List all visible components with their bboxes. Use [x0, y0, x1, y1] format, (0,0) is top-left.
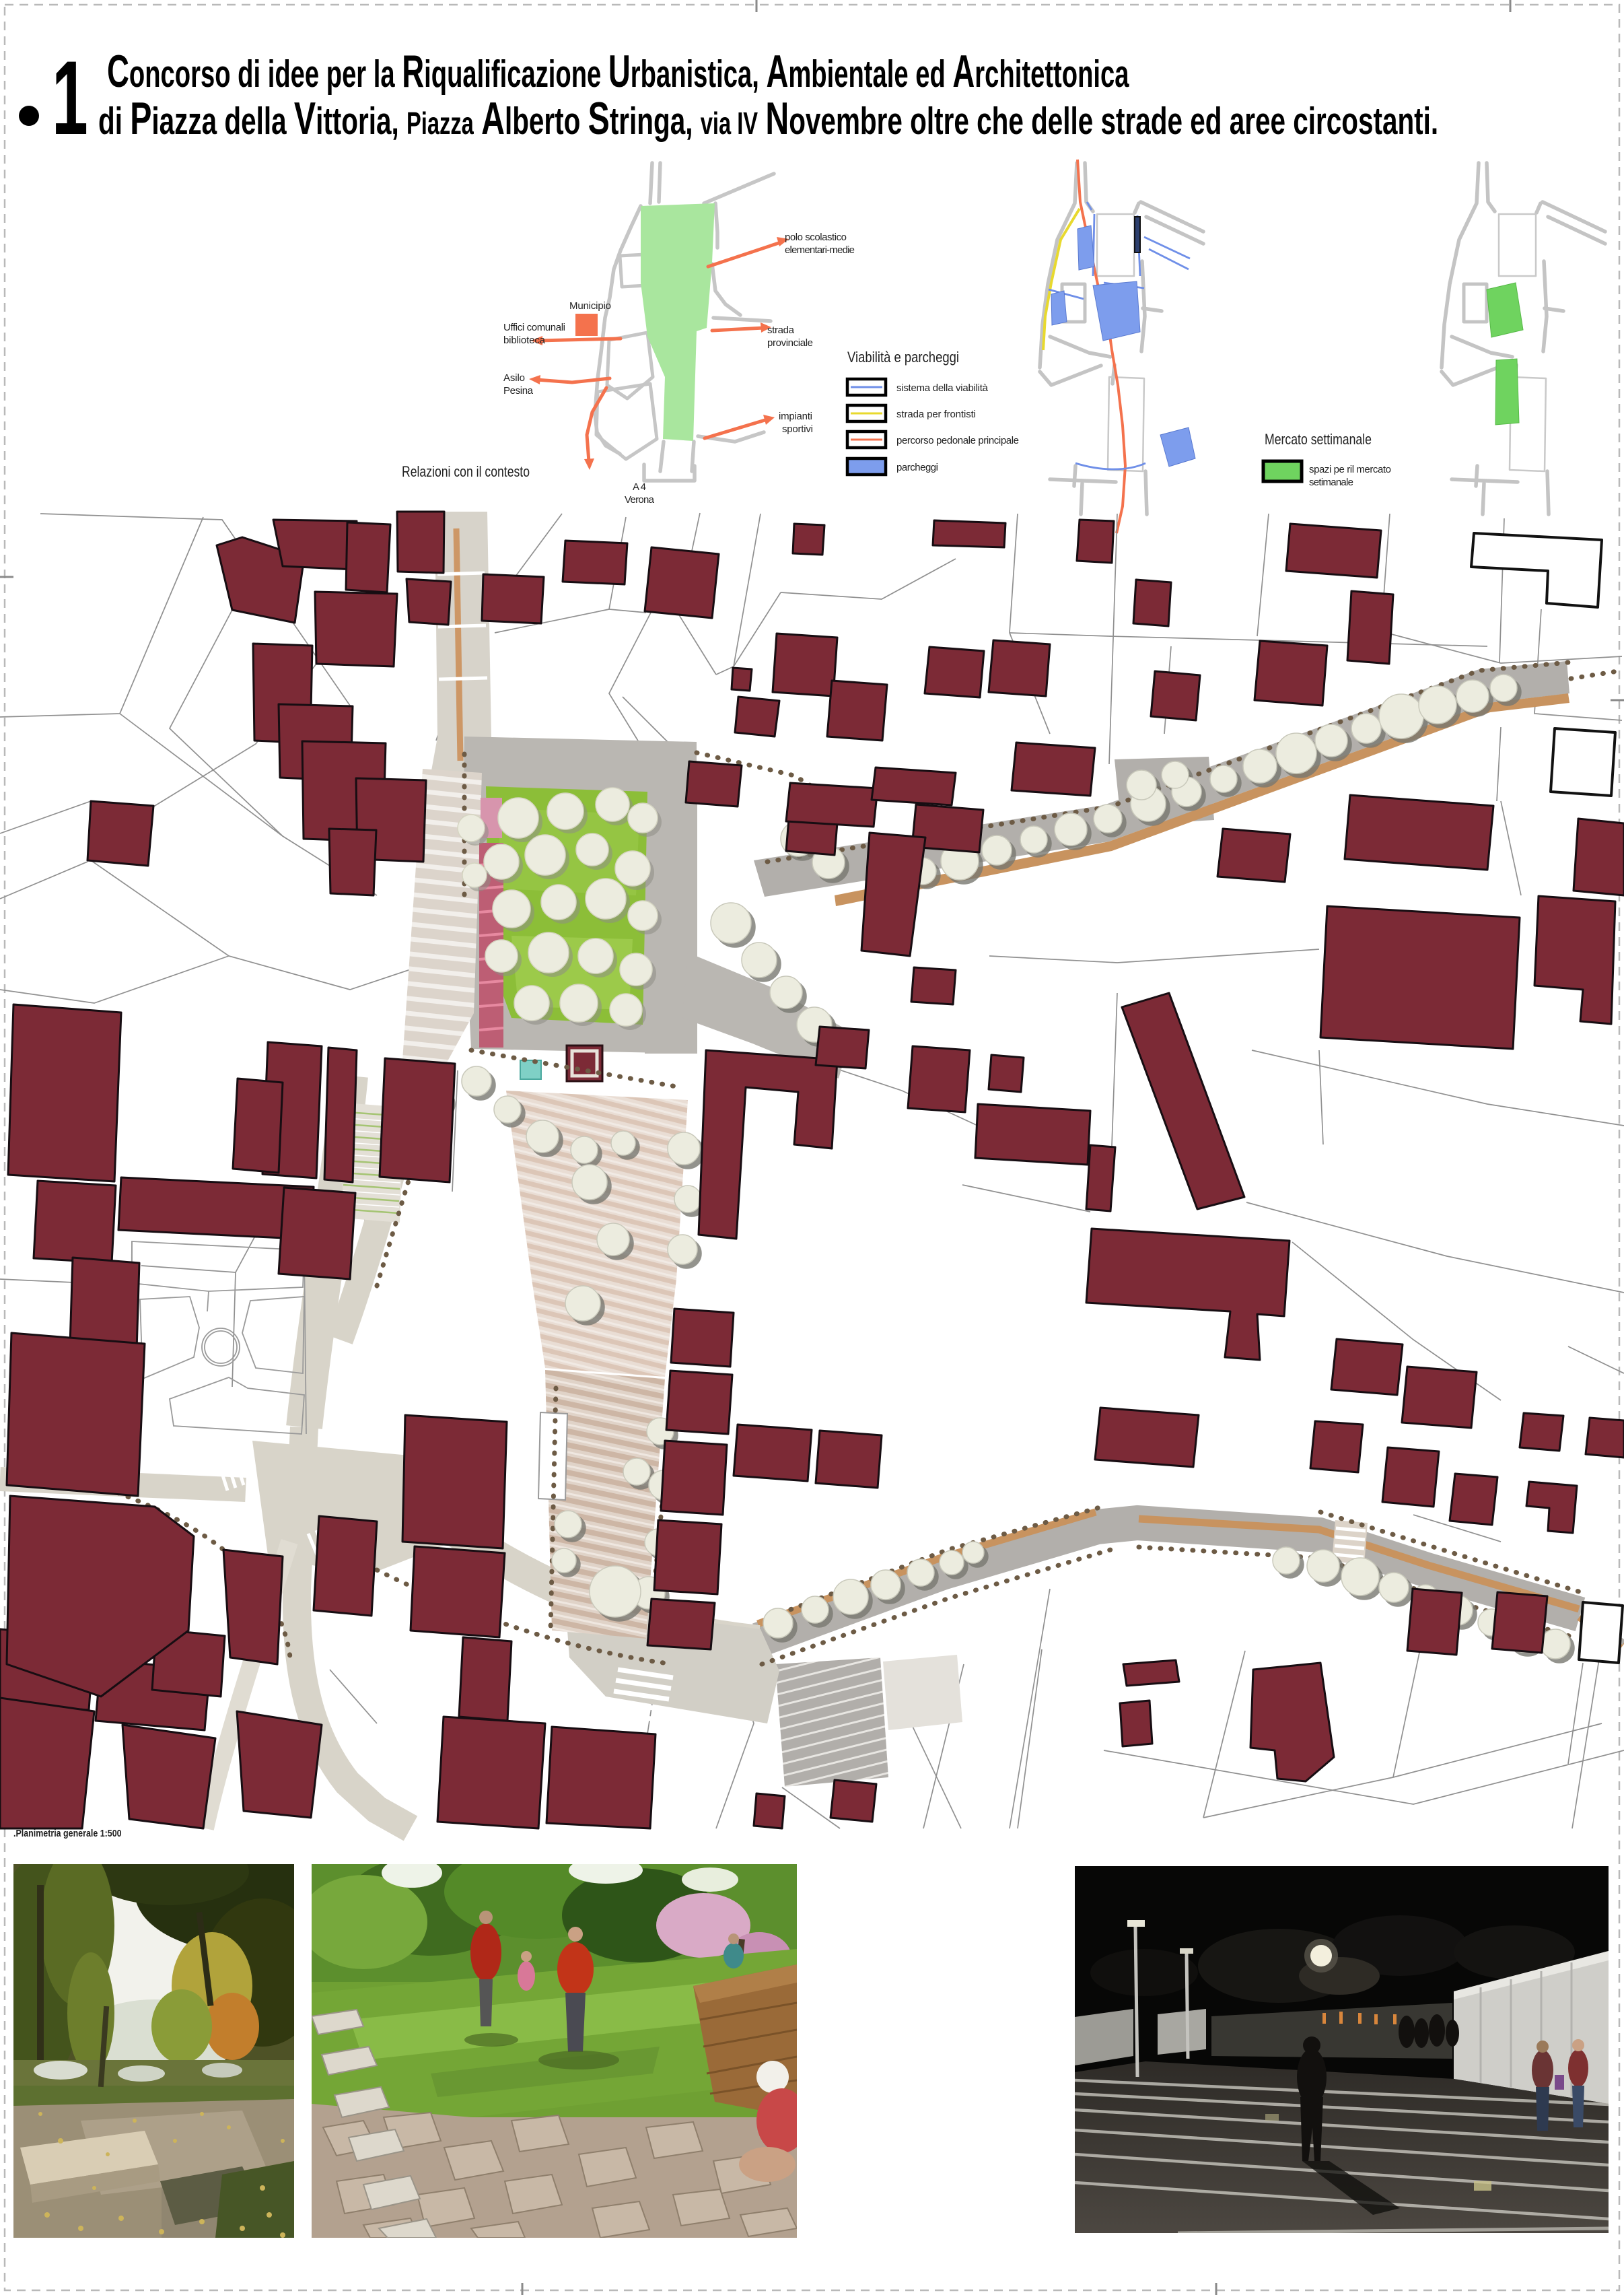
svg-text:biblioteca: biblioteca [503, 335, 546, 346]
svg-text:Mercato settimanale: Mercato settimanale [1265, 431, 1372, 448]
svg-text:impianti: impianti [779, 411, 812, 422]
svg-text:Relazioni con il contesto: Relazioni con il contesto [402, 463, 530, 480]
svg-text:strada: strada [767, 324, 795, 336]
svg-text:Viabilità e parcheggi: Viabilità e parcheggi [847, 349, 959, 366]
svg-text:provinciale: provinciale [767, 337, 813, 349]
svg-text:percorso pedonale principale: percorso pedonale principale [896, 435, 1019, 446]
svg-text:strada per frontisti: strada per frontisti [896, 409, 976, 420]
svg-text:Uffici comunali: Uffici comunali [503, 322, 565, 333]
svg-text:parcheggi: parcheggi [896, 462, 938, 473]
svg-text:Pesina: Pesina [503, 385, 534, 397]
svg-text:spazi pe ril mercato: spazi pe ril mercato [1309, 464, 1391, 475]
svg-text:sistema della viabilità: sistema della viabilità [896, 382, 989, 394]
svg-text:elementari-medie: elementari-medie [785, 244, 855, 256]
svg-text:setimanale: setimanale [1309, 477, 1353, 488]
svg-text:polo scolastico: polo scolastico [785, 232, 847, 243]
svg-text:Verona: Verona [625, 494, 655, 506]
svg-text:Asilo: Asilo [503, 372, 525, 384]
svg-text:Municipio: Municipio [569, 300, 611, 312]
svg-text:sportivi: sportivi [782, 423, 813, 435]
svg-text:A4: A4 [633, 481, 646, 493]
